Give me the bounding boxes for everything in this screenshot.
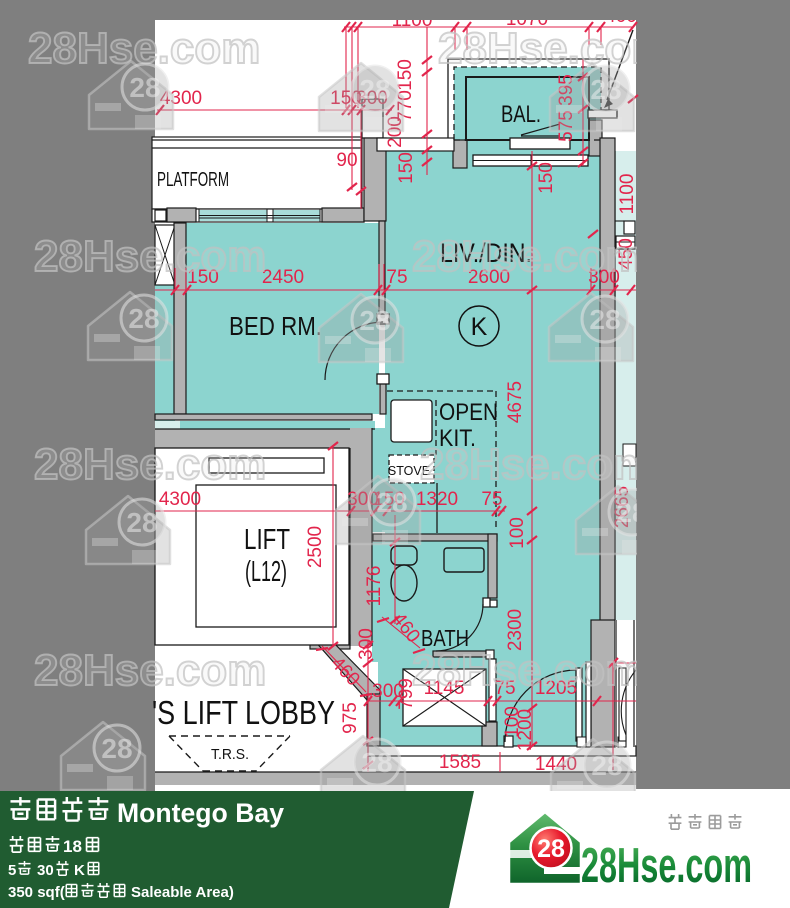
svg-text:28: 28	[537, 835, 565, 863]
svg-text:1200: 1200	[515, 709, 536, 751]
svg-text:T.R.S.: T.R.S.	[211, 746, 249, 763]
svg-text:300: 300	[356, 628, 377, 660]
svg-text:1320: 1320	[416, 489, 458, 510]
svg-text:975: 975	[340, 702, 361, 734]
svg-text:Montego Bay: Montego Bay	[117, 798, 284, 828]
svg-text:'S LIFT LOBBY: 'S LIFT LOBBY	[152, 694, 335, 731]
svg-text:100: 100	[507, 517, 528, 549]
svg-text:28Hse.com: 28Hse.com	[34, 646, 266, 695]
svg-text:OPEN: OPEN	[439, 399, 498, 426]
svg-text:2300: 2300	[505, 609, 526, 651]
svg-text:2450: 2450	[262, 267, 304, 288]
svg-text:28Hse.com: 28Hse.com	[34, 440, 266, 489]
svg-text:150: 150	[396, 152, 417, 184]
svg-text:2500: 2500	[305, 526, 326, 568]
svg-text:1585: 1585	[439, 752, 481, 773]
svg-text:28Hse.com: 28Hse.com	[581, 839, 752, 893]
svg-text:28Hse.com: 28Hse.com	[412, 646, 644, 695]
svg-text:Saleable Area): Saleable Area)	[131, 884, 234, 901]
svg-text:(L12): (L12)	[245, 556, 287, 588]
svg-text:K: K	[74, 862, 85, 879]
svg-text:BED RM.: BED RM.	[229, 311, 322, 341]
svg-text:75: 75	[481, 489, 502, 510]
svg-text:4300: 4300	[159, 489, 201, 510]
svg-text:5: 5	[8, 862, 16, 879]
svg-text:28Hse.com: 28Hse.com	[438, 24, 670, 73]
svg-text:28Hse.com: 28Hse.com	[412, 232, 644, 281]
svg-text:150: 150	[536, 162, 557, 194]
svg-text:28Hse.com: 28Hse.com	[34, 232, 266, 281]
svg-text:LIFT: LIFT	[244, 524, 290, 556]
svg-text:K: K	[471, 313, 488, 341]
svg-text:28Hse.com: 28Hse.com	[420, 440, 652, 489]
svg-text:30: 30	[37, 862, 54, 879]
svg-text:PLATFORM: PLATFORM	[157, 169, 229, 191]
svg-text:18: 18	[63, 837, 82, 856]
svg-text:4675: 4675	[505, 381, 526, 423]
svg-text:1176: 1176	[364, 566, 385, 607]
svg-text:350 sqf(: 350 sqf(	[8, 884, 65, 901]
svg-text:BAL.: BAL.	[501, 101, 541, 128]
svg-text:90: 90	[336, 150, 357, 171]
svg-text:1100: 1100	[617, 174, 638, 215]
svg-text:75: 75	[386, 267, 407, 288]
